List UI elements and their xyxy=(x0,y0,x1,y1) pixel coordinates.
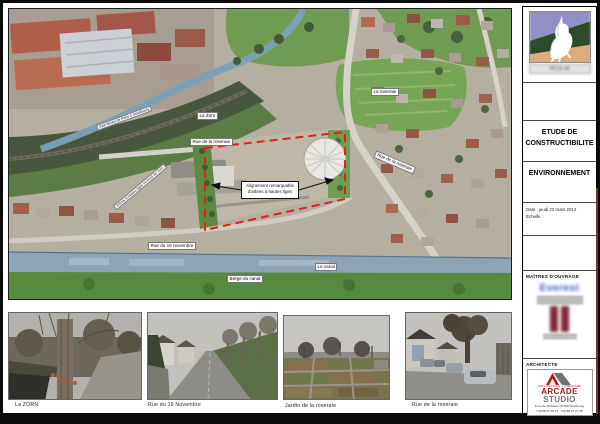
label-rue-du-19-novembre: Rue du 19 novembre xyxy=(148,242,196,250)
photo-rue-du-19-novembre xyxy=(147,312,278,400)
owners-header: MAÎTRES D'OUVRAGE xyxy=(523,271,596,279)
photo-la-zorn-image xyxy=(9,313,142,400)
scale-line: Echelle : xyxy=(526,213,593,220)
sheet-title-section: ENVIRONNEMENT xyxy=(523,162,596,203)
label-la-zorn: La Zorn xyxy=(197,112,218,120)
municipality-section: VILLE de xyxy=(523,7,596,83)
architect-name-studio: STUDIO xyxy=(543,395,576,404)
label-le-canal: Le canal xyxy=(315,263,337,271)
annotation-line2: d'arbres à hautes tiges xyxy=(242,189,298,195)
owner-details2-redacted xyxy=(543,334,577,339)
caption-rue-du-19-novembre: Rue du 19 Novembre xyxy=(148,402,201,408)
label-berge-du-canal: Berge du canal xyxy=(227,275,263,283)
annotation-tree-alignment: Alignement remarquable d'arbres à hautes… xyxy=(241,181,299,199)
architect-address: 6 rue de Molsheim 67000 Strasbourg xyxy=(529,404,591,409)
empty-box-1 xyxy=(523,83,596,121)
study-title-line2: CONSTRUCTIBILITE xyxy=(523,139,596,150)
dome-building xyxy=(304,138,346,180)
photo-rue-du-19-novembre-image xyxy=(148,313,278,400)
photo-la-zorn xyxy=(8,312,142,400)
owner-details-redacted xyxy=(537,296,583,304)
caption-la-zorn: La ZORN xyxy=(15,402,38,408)
owner-logo-redacted: Everest xyxy=(523,283,596,294)
plan-sheet-canvas: La Zorn Rue de la roseraie La roseraie R… xyxy=(0,0,600,424)
architect-card: ARCHITECTURE + URBANISME ARCADE STUDIO 6… xyxy=(527,369,593,416)
title-block: VILLE de ETUDE DE CONSTRUCTIBILITE ENVIR… xyxy=(522,6,597,414)
owner-logo2-redacted xyxy=(547,306,573,332)
photo-rue-de-la-roseraie xyxy=(405,312,512,400)
aerial-map: La Zorn Rue de la roseraie La roseraie R… xyxy=(8,8,512,300)
photo-rue-de-la-roseraie-image xyxy=(406,313,512,400)
date-line: Date : jeudi 22 mars 2012 xyxy=(526,206,593,213)
architect-name: ARCADE STUDIO xyxy=(529,388,591,404)
architect-header: ARCHITECTE xyxy=(523,359,596,367)
architect-phone: t 03 88 27 28 37 · f 03 88 27 27 38 xyxy=(529,409,591,414)
paper-sheet: La Zorn Rue de la roseraie La roseraie R… xyxy=(3,3,597,413)
label-rue-de-la-roseraie: Rue de la roseraie xyxy=(190,138,233,146)
sheet-title: ENVIRONNEMENT xyxy=(523,162,596,180)
aerial-map-graphic xyxy=(9,9,511,299)
municipality-unicorn-logo xyxy=(529,11,591,63)
study-title-section: ETUDE DE CONSTRUCTIBILITE xyxy=(523,121,596,162)
sheet-right-edge-mark xyxy=(596,188,598,414)
caption-rue-de-la-roseraie: Rue de la roseraie xyxy=(412,402,458,408)
municipality-name-redacted: VILLE de xyxy=(529,64,591,74)
label-la-roseraie: La roseraie xyxy=(371,88,399,96)
photo-jardin-de-la-roseraie xyxy=(283,315,390,400)
arcade-studio-logo xyxy=(545,372,575,385)
empty-box-2 xyxy=(523,236,596,271)
owners-section: MAÎTRES D'OUVRAGE Everest xyxy=(523,271,596,359)
date-scale-section: Date : jeudi 22 mars 2012 Echelle : xyxy=(523,203,596,236)
caption-jardin-de-la-roseraie: Jardin de la roseraie xyxy=(285,403,336,409)
study-title-line1: ETUDE DE xyxy=(523,128,596,139)
annotation-line1: Alignement remarquable xyxy=(242,183,298,189)
architect-section: ARCHITECTE ARCHITECTURE + URBANISME ARCA… xyxy=(523,359,596,413)
photo-jardin-de-la-roseraie-image xyxy=(284,316,390,400)
